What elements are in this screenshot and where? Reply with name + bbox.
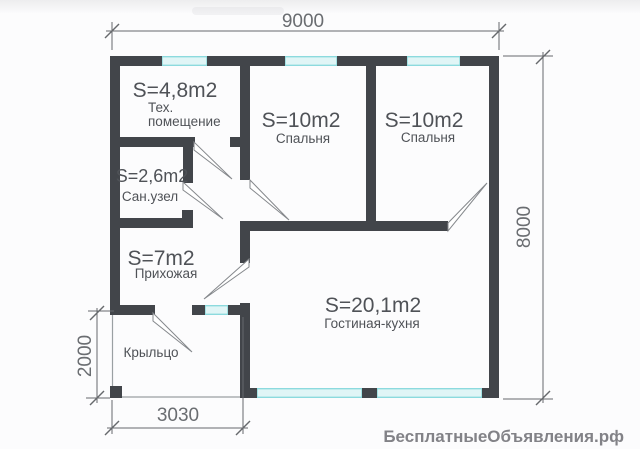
room-name-living-kitchen: Гостиная-кухня [324,316,419,331]
wall-bedroom-divider [366,66,376,231]
wall-segment [362,388,377,398]
watermark-text: БесплатныеОбъявления.рф [383,427,624,446]
room-area-bedroom-1: S=10m2 [262,109,341,132]
wall-bedrooms-bottom [240,221,448,231]
wall-segment [230,137,250,147]
wall-segment [192,305,205,315]
room-name-bedroom-2: Спальня [401,130,455,145]
window-bedroom-1 [285,57,337,66]
wall-segment [337,56,407,66]
wall-segment [482,388,499,398]
room-name-tech-line1: Тех. [148,100,173,115]
dim-label-left: 2000 [75,335,96,377]
window-living-right [377,389,482,398]
room-area-living-kitchen: S=20,1m2 [325,294,421,317]
room-name-entry-hall: Прихожая [135,266,198,281]
wall-living-left-upper [240,221,250,263]
wall-segment [207,56,285,66]
window-living-left [257,389,362,398]
dim-label-bottom: 3030 [157,405,199,426]
faint-artifact [192,7,284,15]
room-name-bedroom-1: Спальня [276,131,330,146]
room-name-porch: Крыльцо [123,345,178,360]
wall-tech-bottom [110,137,195,147]
wall-tech-right [240,66,250,180]
room-name-tech-line2: помещение [148,114,221,129]
front-door-glazing [205,306,228,315]
floor-plan-canvas: 9000 8000 2000 3030 S=4,8m2 Тех. помещен… [0,0,640,449]
wall-entry-front [110,305,155,315]
room-area-bedroom-2: S=10m2 [385,109,464,132]
window-tech-room [162,57,207,66]
room-area-tech: S=4,8m2 [133,79,218,102]
floor-plan-page: 9000 8000 2000 3030 S=4,8m2 Тех. помещен… [0,0,640,449]
room-name-bathroom: Сан.узел [122,189,178,204]
wall-living-left-lower [240,303,250,398]
porch-corner-post [110,386,122,398]
window-bedroom-2 [407,57,460,66]
dim-label-right: 8000 [514,206,535,248]
dim-label-top: 9000 [282,11,324,32]
room-area-bathroom: S=2,6m2 [116,166,189,186]
wall-segment [228,305,250,315]
wall-bathroom-bottom [110,218,193,228]
wall-right [489,56,499,398]
